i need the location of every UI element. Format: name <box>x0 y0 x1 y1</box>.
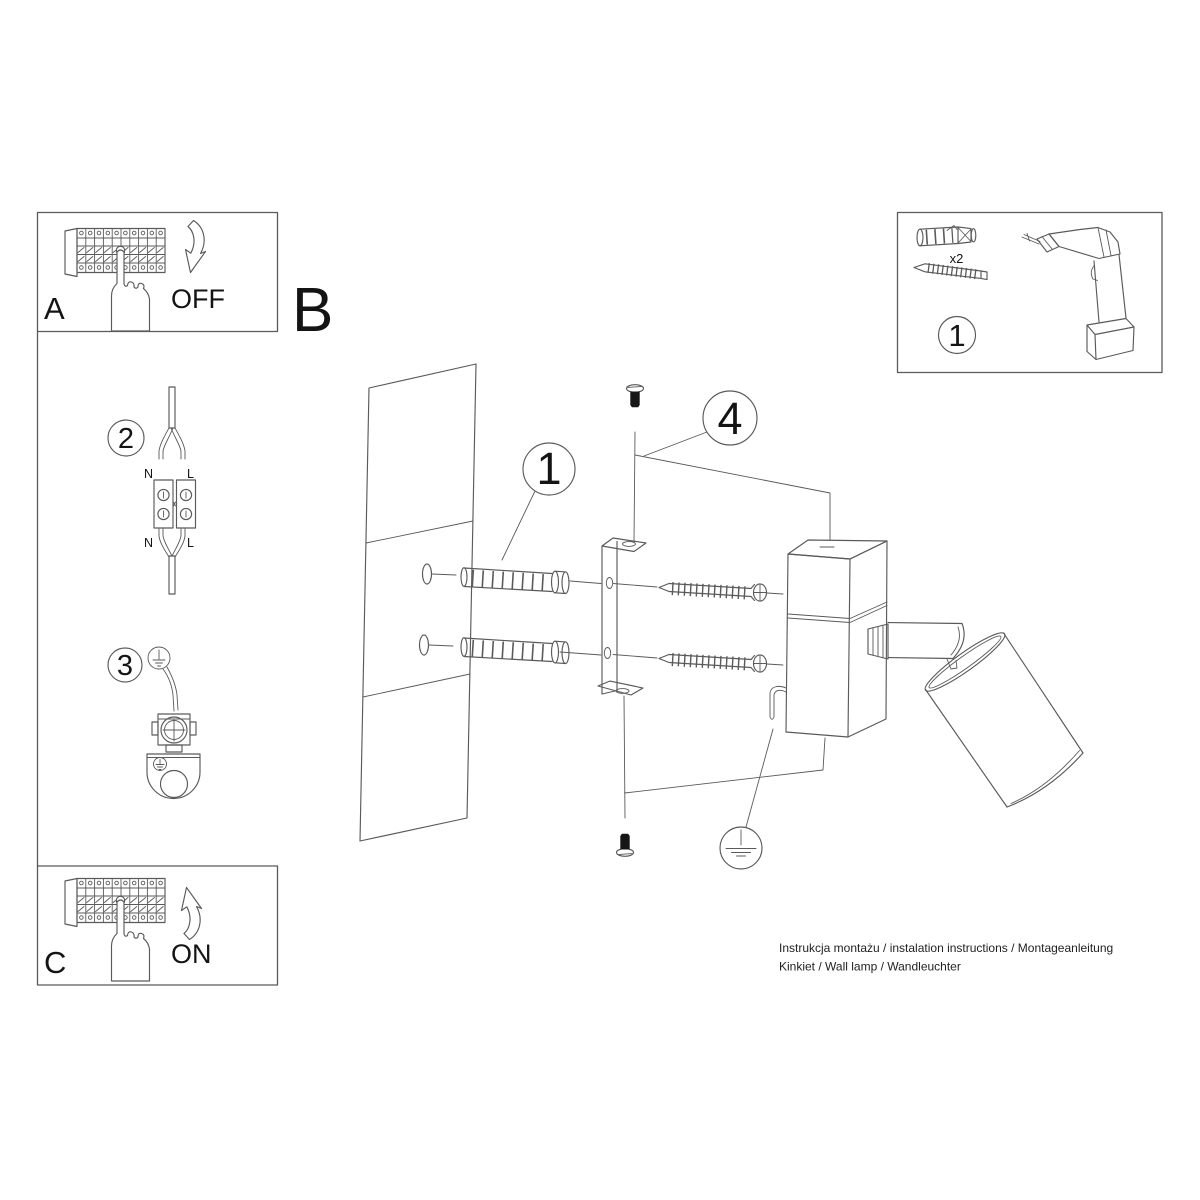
step-2-badge: 2 <box>108 420 144 456</box>
cable-bottom <box>169 556 175 594</box>
callout-4: 4 <box>644 391 757 456</box>
wire-label-l-top: L <box>187 467 194 481</box>
wiring-step: 2 N L N L <box>108 387 196 594</box>
ground-wire-hook <box>770 686 786 719</box>
cable-bottom-strands <box>159 529 185 557</box>
mounting-ring <box>147 754 200 799</box>
panel-a-off-label: OFF <box>171 284 225 314</box>
panel-a: A OFF <box>38 213 278 332</box>
lamp-body <box>770 540 887 737</box>
ground-step: 3 <box>108 647 200 799</box>
kit-screw-icon <box>914 264 987 280</box>
ground-wire <box>163 667 178 711</box>
footer-line-1: Instrukcja montażu / instalation instruc… <box>779 941 1113 955</box>
anchor-alignment-lines <box>560 581 601 655</box>
panel-a-label: A <box>44 291 65 326</box>
drill-icon <box>1022 228 1134 360</box>
callout-1-number: 1 <box>536 443 561 494</box>
arrow-down-icon <box>186 221 206 273</box>
wire-label-l-bottom: L <box>187 536 194 550</box>
step-3-number: 3 <box>117 650 133 682</box>
panel-c-label: C <box>44 945 66 980</box>
callout-1: 1 <box>502 443 575 560</box>
wall-panel <box>360 364 476 841</box>
assembly-axis-lines <box>624 432 830 818</box>
kit-number: 1 <box>948 318 965 353</box>
callout-4-number: 4 <box>717 393 742 444</box>
installation-instruction-sheet: A OFF B x2 1 <box>0 0 1200 1200</box>
lamp-shade <box>920 627 1083 807</box>
step-3-badge: 3 <box>108 648 142 682</box>
earthing-badge <box>720 729 773 869</box>
panel-c-on-label: ON <box>171 939 212 969</box>
step-b-label: B <box>292 276 333 345</box>
kit-box-border <box>898 213 1163 373</box>
step-2-number: 2 <box>118 423 134 455</box>
wire-label-n-top: N <box>144 467 153 481</box>
anchor-quantity-label: x2 <box>950 251 964 266</box>
wire-label-n-bottom: N <box>144 536 153 550</box>
wall-drill-holes <box>420 564 457 655</box>
mounting-bracket <box>598 538 646 695</box>
panel-c: C ON <box>38 866 278 985</box>
kit-box: x2 1 <box>898 213 1163 373</box>
footer: Instrukcja montażu / instalation instruc… <box>779 941 1113 974</box>
instruction-drawing: A OFF B x2 1 <box>0 0 1200 1200</box>
cable-top-strands <box>159 428 185 459</box>
footer-line-2: Kinkiet / Wall lamp / Wandleuchter <box>779 960 961 974</box>
terminal-block <box>154 480 196 528</box>
arrow-up-icon <box>182 888 202 940</box>
ground-symbol-icon <box>148 647 170 669</box>
cable-top <box>169 387 175 428</box>
ground-terminal <box>152 714 196 752</box>
kit-number-badge: 1 <box>939 317 976 354</box>
kit-wall-plug-icon <box>917 226 976 246</box>
